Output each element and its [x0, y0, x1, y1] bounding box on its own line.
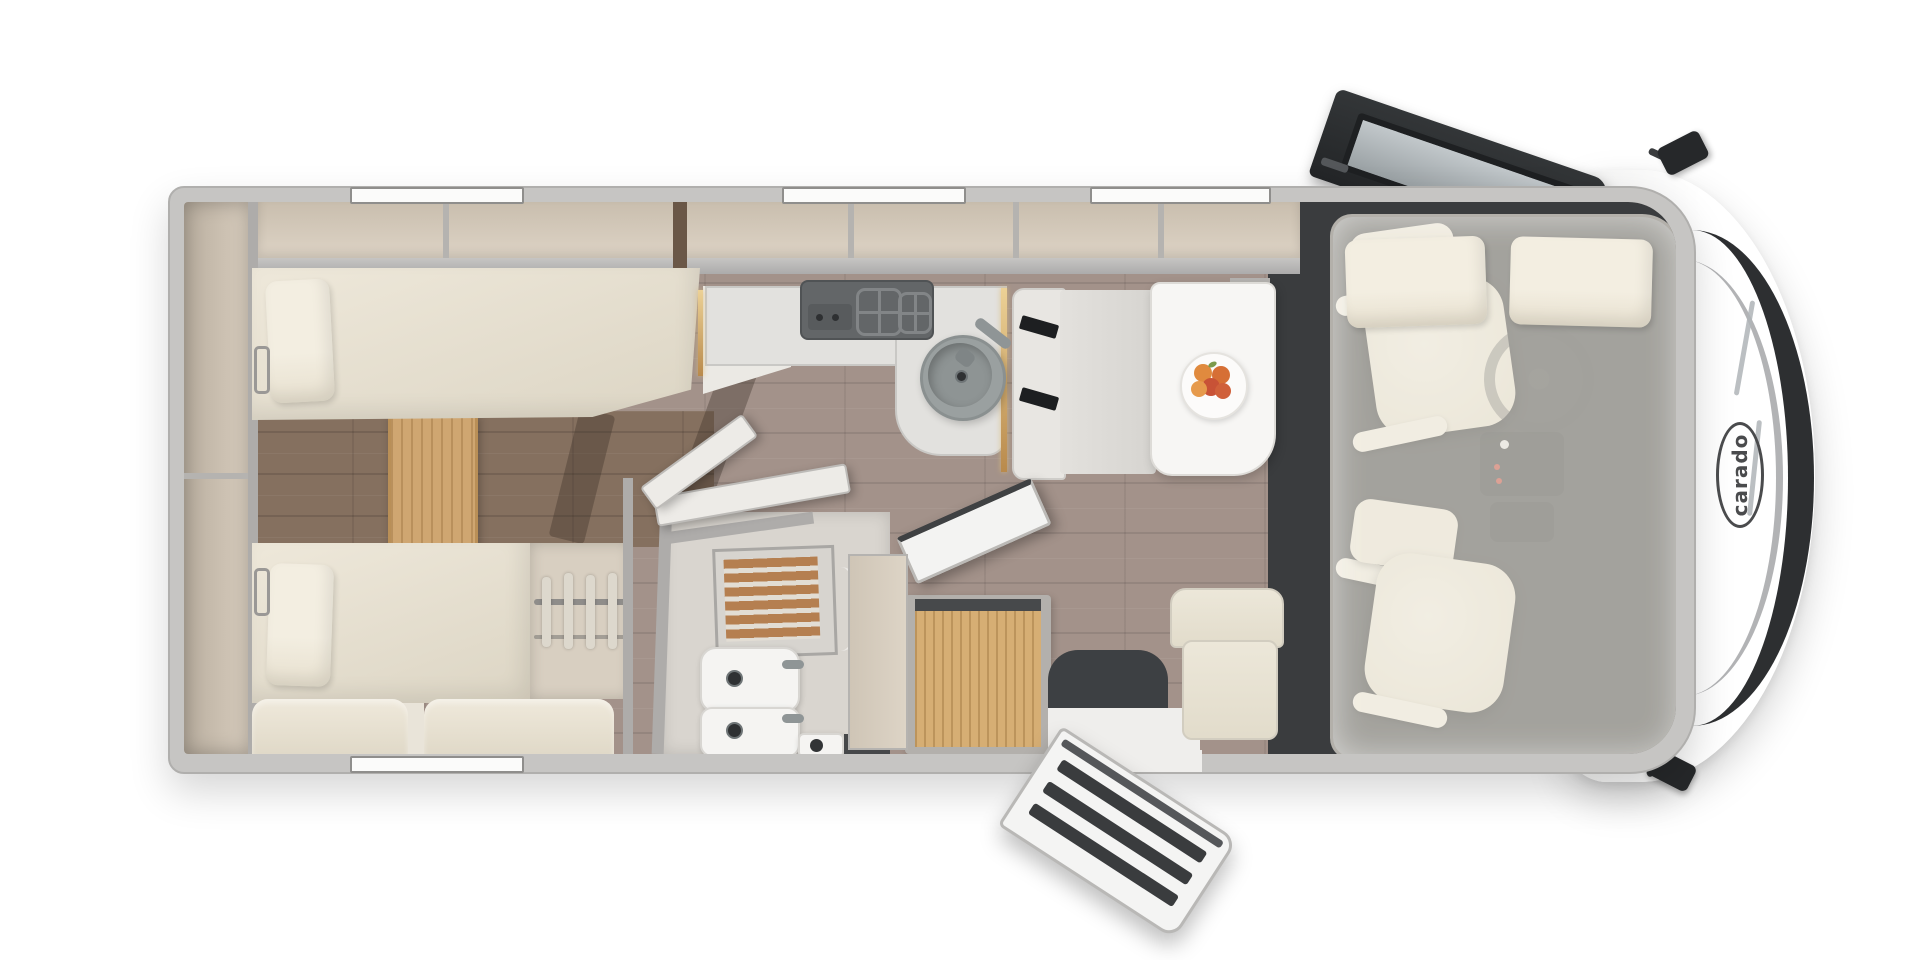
chest-hinge [915, 599, 1041, 611]
cabinet-divider [1158, 202, 1164, 258]
basin-drain [726, 670, 743, 687]
garage-shelf [184, 473, 250, 479]
stove-knob-panel [808, 304, 852, 330]
burner-grate-icon [898, 292, 932, 334]
overhead-cabinets [258, 202, 1300, 260]
window-slot [1090, 187, 1271, 204]
stove-knob [832, 314, 839, 321]
burner-grate-icon [856, 288, 902, 336]
travel-seat-cushion [1182, 640, 1278, 740]
clothes-hanger-icon [564, 573, 573, 649]
bed-cushion [424, 699, 614, 754]
floorplan-canvas: carado [0, 0, 1920, 960]
cabinet-divider [443, 202, 449, 258]
bathroom-cabinet [848, 554, 908, 750]
stove-knob [816, 314, 823, 321]
toilet-button [726, 722, 743, 739]
brass-trim [698, 290, 703, 376]
box-dot [810, 739, 823, 752]
bed-pillow [1345, 236, 1488, 329]
bedroom-step [388, 414, 478, 546]
pillow [265, 278, 335, 403]
clothes-hanger-icon [608, 573, 617, 649]
wardrobe [530, 543, 630, 699]
side-mirror-top [1656, 129, 1711, 177]
carado-logo-text: carado [1728, 434, 1752, 517]
wall-handle [254, 568, 270, 616]
shower-teak-grate [723, 556, 820, 641]
cabinet-divider [848, 202, 854, 258]
window-slot [350, 756, 524, 773]
wall-handle [254, 346, 270, 394]
brand-logo: carado [1716, 422, 1764, 528]
faucet-icon [782, 660, 804, 669]
faucet-icon [782, 714, 804, 723]
window-slot [350, 187, 524, 204]
chest-wood-top [915, 611, 1041, 747]
partition-wall [623, 478, 633, 754]
sink-drain [955, 370, 968, 383]
fruit-plate [1180, 352, 1248, 420]
fruit [1191, 381, 1207, 397]
dinette-bench-seat [1060, 290, 1156, 474]
interior [184, 202, 1676, 754]
fruit [1215, 383, 1231, 399]
wheel-arch [1048, 650, 1168, 714]
window-slot [782, 187, 966, 204]
bathroom-box [798, 733, 844, 754]
bed-cushion [252, 699, 408, 754]
dinette-bench-backrest [1012, 288, 1066, 480]
stove [800, 280, 934, 340]
clothes-hanger-icon [542, 577, 551, 647]
travel-seat-back [1170, 588, 1284, 648]
clothes-hanger-icon [586, 575, 595, 649]
pillow [266, 563, 334, 687]
cabinet-divider [1013, 202, 1019, 258]
bedroom-floor [242, 411, 714, 547]
washbasin [700, 647, 800, 713]
bed-pillow [1509, 236, 1653, 328]
